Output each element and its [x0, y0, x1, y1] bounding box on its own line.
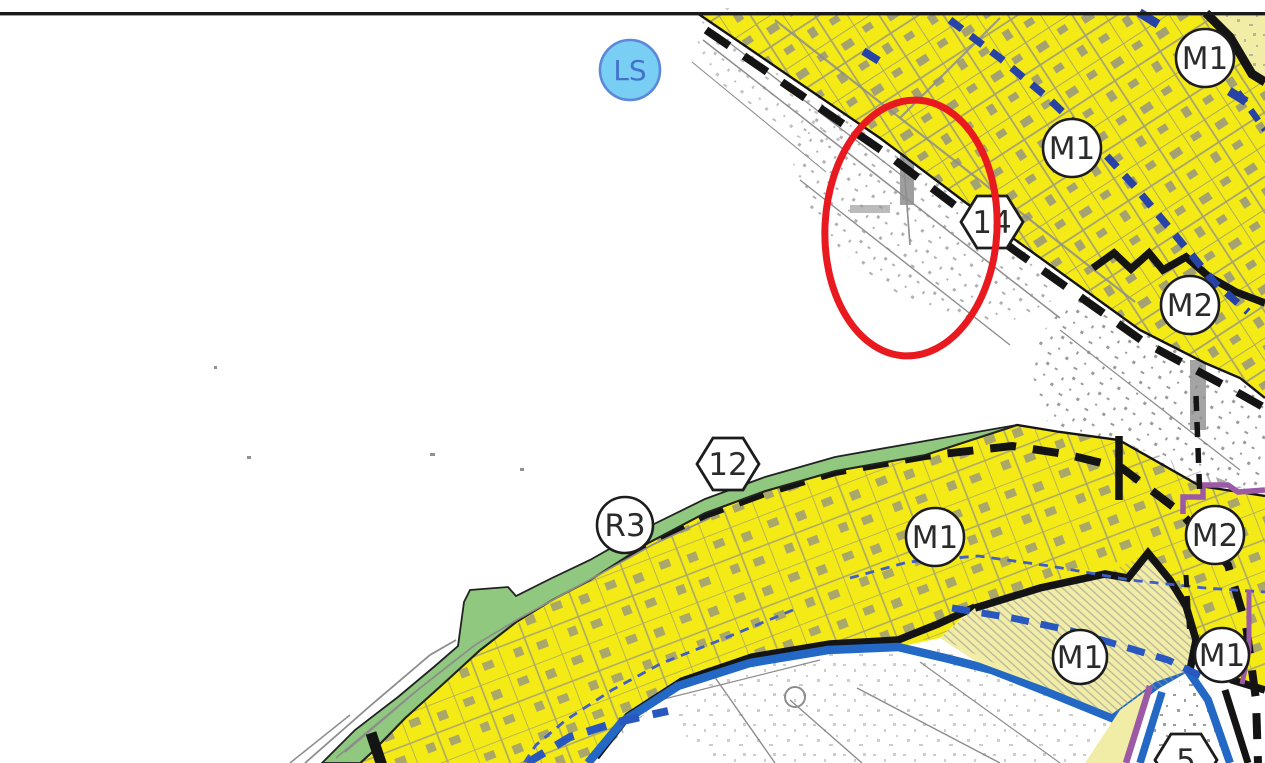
zone-marker-label: M1 [1049, 131, 1095, 167]
zone-marker-m1-top-right: M1 [1176, 29, 1234, 87]
zone-marker-r3: R3 [597, 497, 653, 553]
road-marker-label: 12 [708, 447, 747, 483]
zone-marker-m1-right-edge: M1 [1195, 628, 1249, 682]
zone-marker-label: M2 [1167, 288, 1213, 324]
zone-marker-m1-mid-band: M1 [906, 508, 964, 566]
zone-marker-m1-upper: M1 [1043, 119, 1101, 177]
map-frame-top-border [0, 12, 1265, 15]
zone-marker-m1-pale: M1 [1053, 630, 1107, 684]
zone-marker-ls-label: LS [613, 54, 646, 87]
zone-marker-label: R3 [604, 508, 645, 544]
zone-marker-label: M1 [1057, 640, 1103, 676]
road-marker-label: 14 [972, 205, 1011, 241]
map-viewport: LS M1 M1 M2 R3 M1 M1 M1 [0, 0, 1265, 763]
zone-marker-ls: LS [600, 40, 660, 100]
zone-marker-label: M1 [1182, 41, 1228, 77]
zone-marker-m2-right-edge: M2 [1186, 506, 1244, 564]
zone-marker-m2-upper: M2 [1161, 276, 1219, 334]
zone-marker-label: M2 [1192, 518, 1238, 554]
zoning-map-canvas[interactable]: LS M1 M1 M2 R3 M1 M1 M1 [0, 0, 1265, 763]
zone-marker-label: M1 [1199, 638, 1245, 674]
zone-marker-label: M1 [912, 520, 958, 556]
road-marker-label: 5 [1176, 743, 1196, 763]
